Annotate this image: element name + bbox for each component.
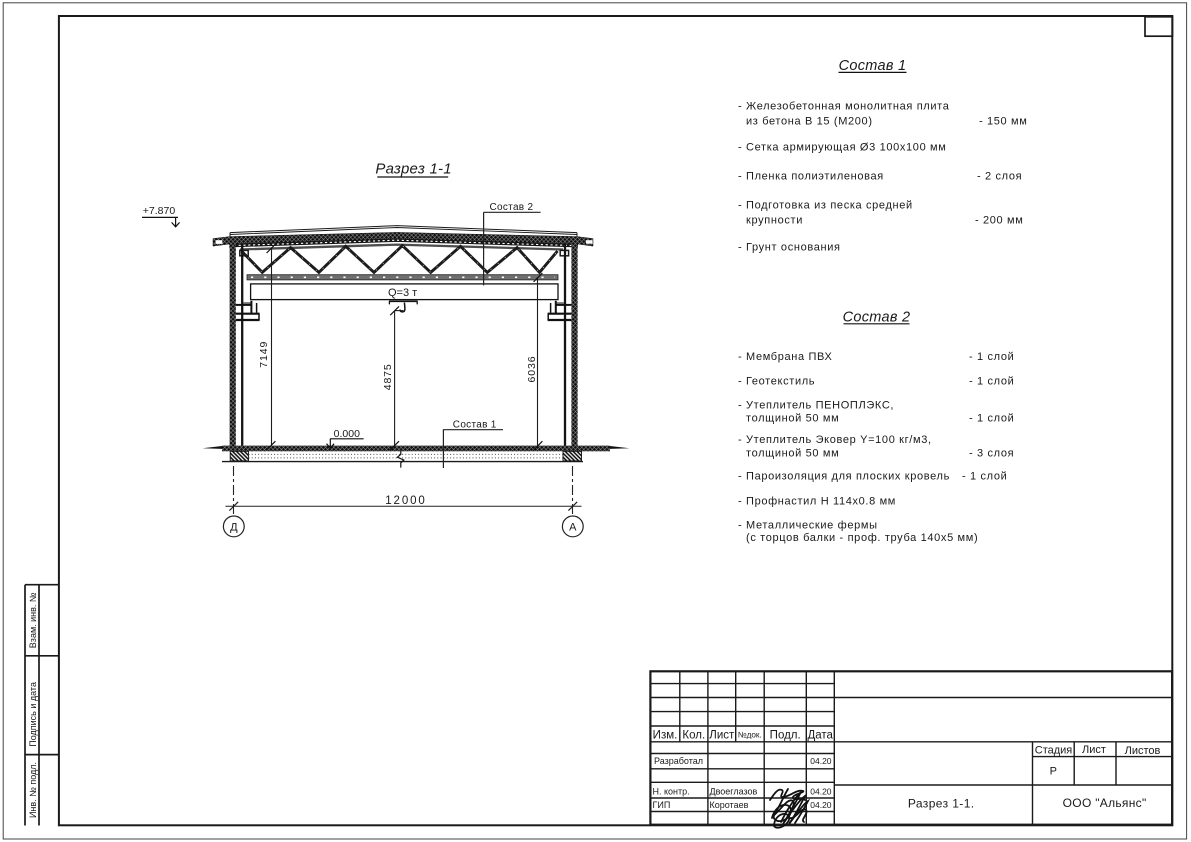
svg-text:Лист: Лист	[1082, 744, 1106, 756]
svg-text:- Пароизоляция для плоских кро: - Пароизоляция для плоских кровель	[738, 470, 950, 482]
svg-text:Двоеглазов: Двоеглазов	[710, 787, 758, 797]
svg-text:- Геотекстиль: - Геотекстиль	[738, 375, 815, 387]
svg-text:Кол.: Кол.	[682, 729, 705, 741]
svg-text:Листов: Листов	[1125, 745, 1161, 757]
svg-text:№док.: №док.	[738, 731, 762, 740]
svg-text:Q=3 т: Q=3 т	[388, 287, 417, 299]
svg-text:Подпись и дата: Подпись и дата	[28, 682, 38, 747]
svg-text:- 200 мм: - 200 мм	[975, 214, 1023, 226]
svg-text:- Утеплитель Эковер Y=100 кг/м: - Утеплитель Эковер Y=100 кг/м3,	[738, 434, 932, 446]
svg-text:(с торцов балки - проф. труба: (с торцов балки - проф. труба 140х5 мм)	[746, 532, 978, 544]
svg-text:- Металлические фермы: - Металлические фермы	[738, 519, 878, 531]
svg-text:04.20: 04.20	[810, 800, 832, 810]
svg-text:Изм.: Изм.	[653, 729, 678, 741]
svg-text:толщиной 50 мм: толщиной 50 мм	[746, 447, 839, 459]
svg-text:Разработал: Разработал	[654, 756, 703, 766]
svg-text:Лист: Лист	[709, 729, 735, 741]
svg-text:Разрез 1-1: Разрез 1-1	[375, 161, 451, 178]
svg-text:Состав 1: Состав 1	[453, 419, 497, 430]
svg-text:12000: 12000	[385, 495, 426, 507]
svg-text:Состав 2: Состав 2	[843, 309, 911, 325]
svg-text:Подл.: Подл.	[770, 729, 801, 741]
svg-text:- Железобетонная монолитная п: - Железобетонная монолитная плита	[738, 101, 950, 113]
svg-text:Коротаев: Коротаев	[710, 800, 749, 810]
svg-text:Состав 1: Состав 1	[839, 58, 907, 74]
svg-text:0.000: 0.000	[334, 428, 360, 440]
svg-text:- 1 слой: - 1 слой	[969, 351, 1014, 363]
svg-text:Р: Р	[1050, 766, 1057, 778]
svg-text:- 1 слой: - 1 слой	[962, 470, 1007, 482]
svg-text:из бетона В 15 (М200): из бетона В 15 (М200)	[746, 115, 873, 127]
svg-text:Состав 2: Состав 2	[490, 202, 534, 213]
svg-text:- 1 слой: - 1 слой	[969, 412, 1014, 424]
svg-text:Разрез 1-1.: Разрез 1-1.	[908, 797, 975, 811]
svg-text:- 3 слоя: - 3 слоя	[969, 447, 1014, 459]
svg-text:- Мембрана ПВХ: - Мембрана ПВХ	[738, 351, 833, 363]
svg-text:крупности: крупности	[746, 214, 803, 226]
svg-text:толщиной 50 мм: толщиной 50 мм	[746, 412, 839, 424]
svg-text:ГИП: ГИП	[653, 800, 671, 810]
svg-text:4875: 4875	[382, 363, 394, 390]
svg-text:- Профнастил Н 114х0.8 мм: - Профнастил Н 114х0.8 мм	[738, 495, 896, 507]
svg-text:А: А	[569, 521, 577, 533]
svg-text:- Сетка армирующая Ø3 100х100: - Сетка армирующая Ø3 100х100 мм	[738, 142, 946, 154]
svg-text:- Утеплитель ПЕНОПЛЭКС,: - Утеплитель ПЕНОПЛЭКС,	[738, 399, 894, 411]
svg-text:- Пленка полиэтиленовая: - Пленка полиэтиленовая	[738, 171, 884, 183]
svg-text:6036: 6036	[526, 356, 538, 383]
svg-text:- 1 слой: - 1 слой	[969, 375, 1014, 387]
svg-text:7149: 7149	[258, 341, 270, 368]
svg-text:- Подготовка из песка средней: - Подготовка из песка средней	[738, 200, 913, 212]
svg-text:Взам. инв. №: Взам. инв. №	[28, 592, 38, 648]
svg-text:Дата: Дата	[807, 729, 833, 741]
svg-text:04.20: 04.20	[810, 787, 832, 797]
svg-text:- 2 слоя: - 2 слоя	[977, 171, 1022, 183]
svg-text:Стадия: Стадия	[1035, 745, 1073, 757]
svg-text:+7.870: +7.870	[143, 205, 176, 217]
svg-text:ООО "Альянс": ООО "Альянс"	[1063, 796, 1147, 810]
svg-text:Д: Д	[230, 521, 238, 533]
svg-text:04.20: 04.20	[810, 756, 832, 766]
svg-text:- 150 мм: - 150 мм	[979, 115, 1027, 127]
svg-text:Инв. № подл.: Инв. № подл.	[28, 762, 38, 818]
svg-text:Н. контр.: Н. контр.	[653, 787, 690, 797]
svg-text:- Грунт основания: - Грунт основания	[738, 242, 841, 254]
